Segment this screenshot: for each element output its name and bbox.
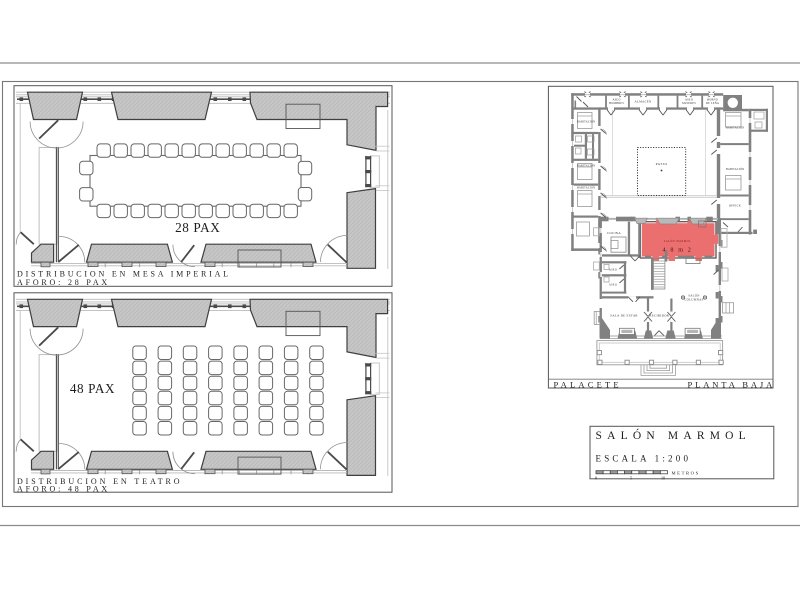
- svg-text:HOMBRES: HOMBRES: [609, 102, 624, 105]
- svg-text:PALACETE: PALACETE: [554, 379, 622, 389]
- svg-text:48 PAX: 48 PAX: [70, 381, 115, 396]
- svg-text:ALMACÉN: ALMACÉN: [635, 98, 652, 103]
- svg-text:DE LEÑA: DE LEÑA: [706, 102, 719, 105]
- svg-text:ASEO: ASEO: [609, 283, 617, 286]
- svg-text:0: 0: [595, 475, 597, 480]
- svg-text:SALÓN MARMOL: SALÓN MARMOL: [664, 240, 691, 243]
- svg-text:AFORO: 28 PAX: AFORO: 28 PAX: [17, 278, 110, 287]
- svg-text:10: 10: [661, 475, 665, 480]
- svg-text:PLANTA BAJA: PLANTA BAJA: [688, 379, 776, 389]
- svg-text:COLUMNAS: COLUMNAS: [684, 297, 703, 301]
- svg-text:28 PAX: 28 PAX: [175, 220, 220, 235]
- svg-text:SALÓN MARMOL: SALÓN MARMOL: [596, 428, 751, 442]
- svg-text:SALA DE ESTAR: SALA DE ESTAR: [610, 314, 638, 318]
- svg-text:HABITACIÓN: HABITACIÓN: [726, 168, 745, 171]
- svg-text:HABITACIÓN: HABITACIÓN: [577, 165, 596, 168]
- svg-text:HABITACIÓN: HABITACIÓN: [577, 187, 596, 190]
- svg-text:AFORO: 48 PAX: AFORO: 48 PAX: [17, 485, 110, 494]
- svg-text:HABITACIÓN: HABITACIÓN: [726, 127, 745, 130]
- svg-text:ASEO: ASEO: [609, 268, 617, 271]
- svg-text:COCINA: COCINA: [607, 231, 621, 235]
- svg-text:METROS: METROS: [672, 470, 700, 475]
- svg-text:ESCALA 1:200: ESCALA 1:200: [596, 453, 692, 463]
- svg-text:PATIO: PATIO: [656, 162, 668, 166]
- svg-text:5: 5: [630, 475, 632, 480]
- svg-text:MUJERES: MUJERES: [682, 102, 696, 105]
- svg-text:HABITACIÓN: HABITACIÓN: [577, 121, 596, 124]
- svg-text:OFFICE: OFFICE: [729, 204, 741, 208]
- svg-text:RECIBIDOR: RECIBIDOR: [649, 314, 669, 318]
